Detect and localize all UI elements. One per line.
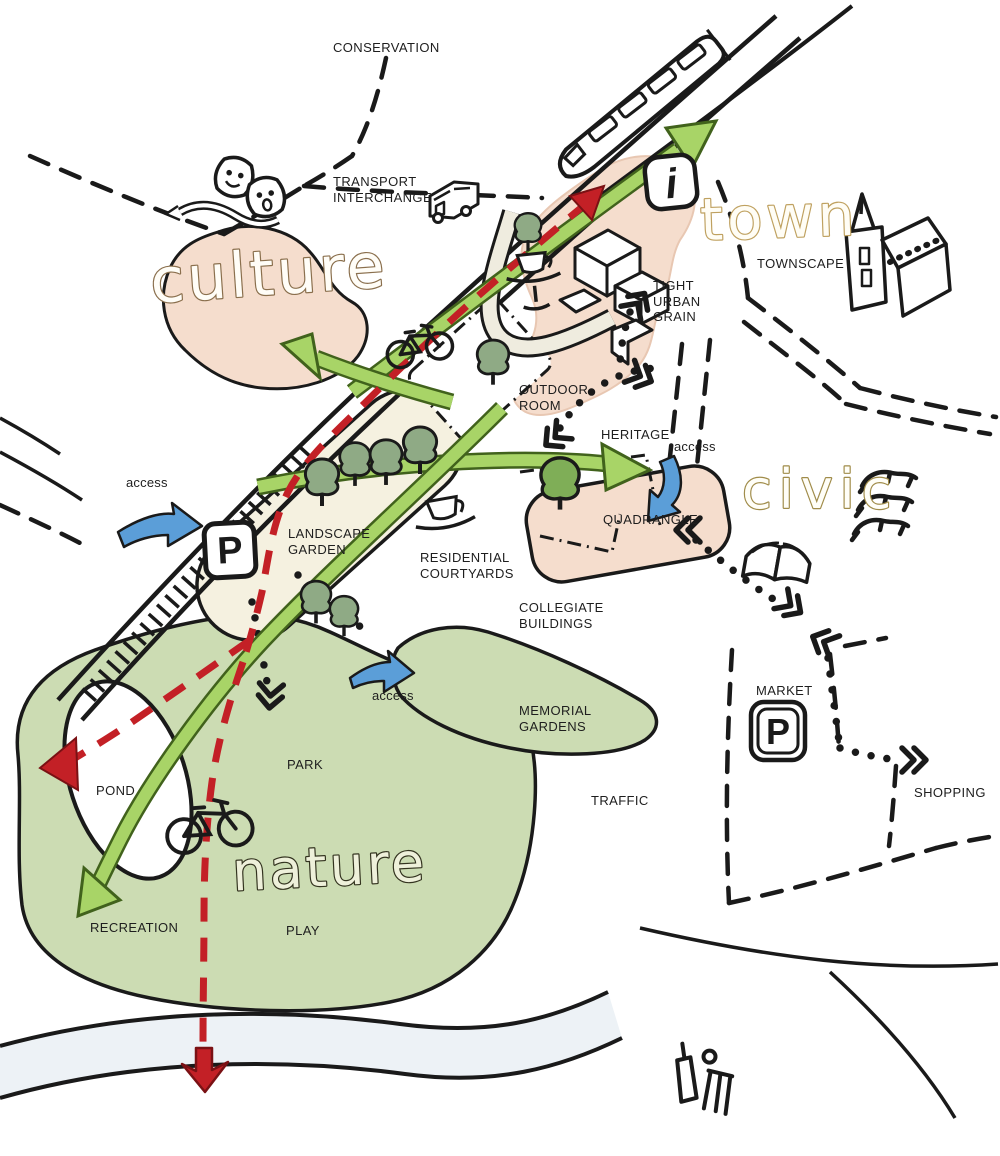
label-pond: POND [96,783,135,799]
label-traffic: TRAFFIC [591,793,649,809]
cricket-stumps [704,1070,733,1114]
label-townscape: TOWNSCAPE [757,256,844,272]
chevron-arrow [902,748,926,772]
cricket-ball [703,1050,716,1063]
chevron-arrow [808,626,840,658]
label-outdoor-room: OUTDOOR ROOM [519,382,588,413]
cup-handle [457,500,464,513]
road-stub-nw2 [0,452,82,500]
label-heritage: HERITAGE [601,427,670,443]
label-tight-urban-grain: TIGHT URBAN GRAIN [653,278,701,325]
open-book-icon [743,538,813,588]
bus-wheel [434,214,443,223]
road-southeast-2 [830,972,955,1118]
road-southeast-1 [640,928,998,966]
book-right-page [775,545,813,585]
access-arrow-west [118,503,202,547]
label-collegiate-buildings: COLLEGIATE BUILDINGS [519,600,604,631]
road-stub-nw1 [0,418,60,454]
cricket-bat-handle [681,1044,685,1058]
zone-word-civic: civic [742,458,898,521]
label-quadrangle: QUADRANGLE [603,512,698,528]
label-market: MARKET [756,683,813,699]
masks-ribbon-end [166,206,180,220]
label-access-park: access [372,688,414,704]
trail-market-east [840,748,898,760]
label-transport-interchange: TRANSPORT INTERCHANGE [333,174,432,205]
label-play: PLAY [286,923,320,939]
concept-map: i P [0,0,1000,1156]
label-residential-courtyards: RESIDENTIAL COURTYARDS [420,550,514,581]
svg-text:P: P [766,711,790,752]
tree-icon [330,596,358,636]
label-recreation: RECREATION [90,920,178,936]
cup-body [427,497,460,521]
church-spire-tip [861,194,862,214]
cricket-icon [674,1043,735,1114]
label-access-heritage: access [674,439,716,455]
bus-wheel [462,207,471,216]
zone-word-town: town [699,181,860,254]
church-icon [846,194,950,316]
information-icon: i [643,154,698,211]
parking-icon: P [204,522,257,579]
label-shopping: SHOPPING [914,785,986,801]
mask-sad [244,175,287,220]
tree-icon [301,581,331,623]
cup-body [517,253,547,274]
theatre-masks-icon [166,154,287,224]
parking-icon: P [751,702,805,760]
chevron-arrow [774,589,807,622]
label-memorial-gardens: MEMORIAL GARDENS [519,703,592,734]
svg-text:P: P [216,529,244,572]
label-conservation: CONSERVATION [333,40,440,56]
bus-icon [430,182,478,223]
label-access-west: access [126,475,168,491]
zone-word-nature: nature [231,830,429,903]
label-landscape-garden: LANDSCAPE GARDEN [288,526,370,557]
cricket-bat [674,1056,699,1102]
label-park: PARK [287,757,323,773]
chevron-arrow [538,421,572,455]
